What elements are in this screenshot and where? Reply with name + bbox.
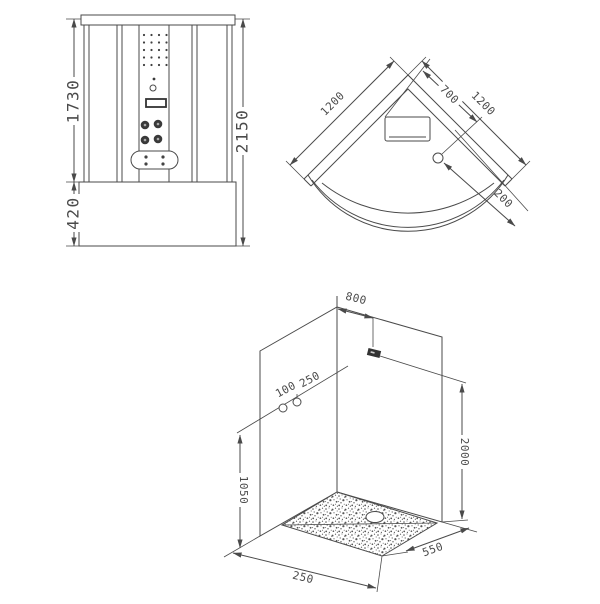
- spray-dots-grid: [143, 34, 168, 66]
- iso-drain: [366, 512, 384, 523]
- plan-tray-arcs: [308, 175, 508, 231]
- iso-right-wall: [337, 307, 442, 522]
- dim-label-outlet-from-corner: 800: [344, 290, 368, 308]
- front-elevation-view: 1730 420 2150: [64, 15, 252, 246]
- dim-label-tray-front-left: 250: [291, 569, 315, 587]
- dim-label-outlet-height: 2000: [458, 438, 471, 467]
- iso-supply-point-2: [293, 398, 301, 406]
- cabin-base-tray: [79, 182, 236, 246]
- dim-label-body-height: 1730: [64, 79, 83, 124]
- cabin-top-cap: [81, 15, 235, 25]
- dim-label-tray-front-right: 550: [421, 540, 446, 560]
- small-knob-ring: [150, 85, 156, 91]
- iso-supply-point-1: [279, 404, 287, 412]
- plan-drain: [433, 153, 443, 163]
- small-knob-dot: [153, 78, 156, 81]
- footrest-capsule: [131, 151, 178, 169]
- dim-label-base-height: 420: [64, 196, 83, 229]
- front-cabin-outline: [79, 15, 236, 246]
- massage-jets: [141, 120, 163, 145]
- installation-isometric-view: 800 2000 1050 100 250: [224, 290, 477, 592]
- top-plan-view: 1200 1200 700 200: [286, 57, 530, 231]
- control-display: [146, 99, 166, 107]
- dim-label-supply-height: 1050: [237, 476, 250, 505]
- dim-label-total-height: 2150: [233, 109, 252, 154]
- control-column: [131, 34, 178, 169]
- technical-drawing-canvas: 1730 420 2150: [0, 0, 600, 600]
- technical-drawing-page: 1730 420 2150: [0, 0, 600, 600]
